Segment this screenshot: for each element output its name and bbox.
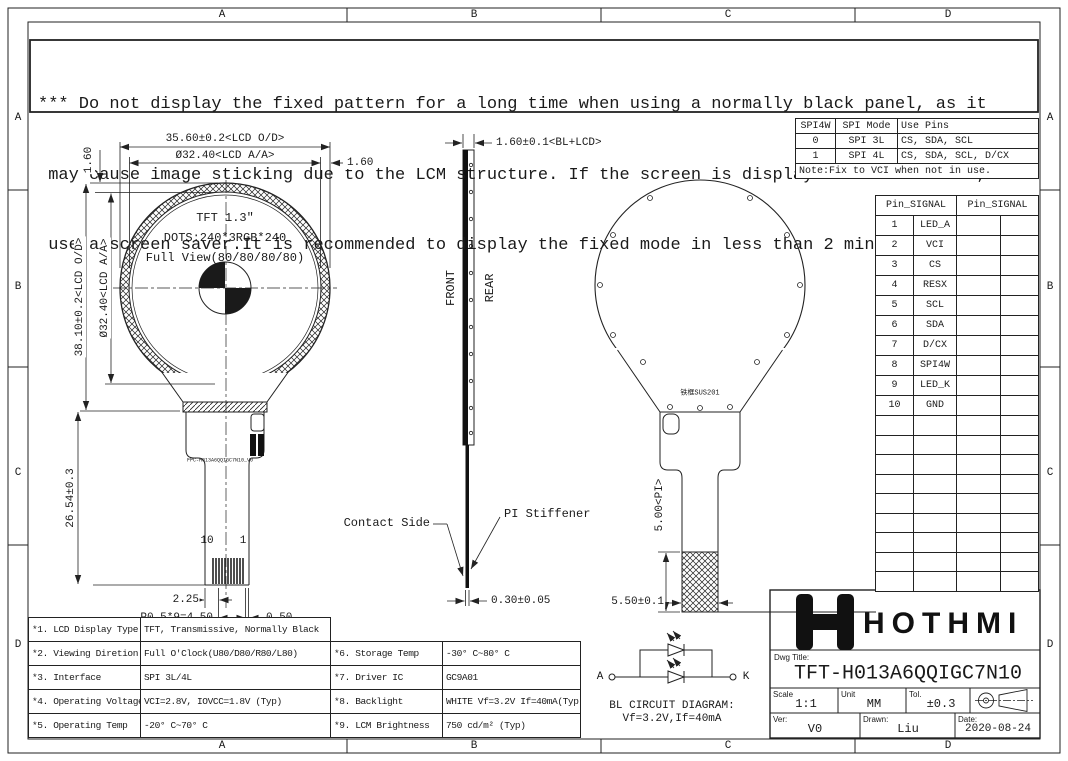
pin-signal: SCL [914,296,957,316]
empty-cell [1001,256,1039,276]
pin-signal: D/CX [914,336,957,356]
pin-1-label: 1 [239,535,248,547]
pin-row: 9LED_K [876,376,1039,396]
zone-col-a-bottom: A [219,740,226,752]
spi-cell: CS, SDA, SCL, D/CX [898,149,1039,164]
dim-lcd-aa-height: Ø32.40<LCD A/A> [99,237,111,338]
spec-row: *9. LCM Brightness750 cd/m² (Typ) [331,714,581,738]
spec-value: -20° C~70° C [141,714,331,738]
cathode-label: K [742,671,751,683]
empty-cell [1001,236,1039,256]
dim-lcd-aa-width: Ø32.40<LCD A/A> [174,150,275,162]
spi-row: 0 SPI 3L CS, SDA, SCL [796,134,1039,149]
pin-number: 2 [876,236,914,256]
pin-signal: LED_K [914,376,957,396]
pin-number: 8 [876,356,914,376]
empty-cell [1001,316,1039,336]
spec-value: WHITE Vf=3.2V If=40mA(Typ) [443,690,581,714]
empty-cell [1001,336,1039,356]
panel-size-label: TFT 1.3″ [195,211,255,225]
rear-side-label: REAR [483,273,497,304]
spec-label: *3. Interface [29,666,141,690]
zone-col-b-bottom: B [471,740,478,752]
empty-row [876,455,1039,475]
empty-row [876,533,1039,553]
spi-cell: 1 [796,149,836,164]
dim-bezel-gap-right: 1.60 [346,157,374,169]
dim-fpc-thickness: 0.30±0.05 [490,595,551,607]
spi-cell: CS, SDA, SCL [898,134,1039,149]
pin-row: 2VCI [876,236,1039,256]
panel-view-label: Full View(80/80/80/80) [145,251,305,265]
spec-value: GC9A01 [443,666,581,690]
empty-cell [957,396,1001,416]
drawing-part-number: TFT-H013A6QQIGC7N10 [794,663,1022,686]
date-value: 2020-08-24 [965,723,1031,735]
zone-col-d-top: D [945,9,952,21]
empty-row [876,435,1039,455]
spec-value: VCI=2.8V, IOVCC=1.8V (Typ) [141,690,331,714]
spec-row: *2. Viewing DiretionFull O'Clock(U80/D80… [29,642,331,666]
zone-col-c-top: C [725,9,732,21]
pin-row: 6SDA [876,316,1039,336]
empty-cell [1001,276,1039,296]
spec-label: *4. Operating Voltage [29,690,141,714]
pin-number: 10 [876,396,914,416]
spi-cell: SPI 4L [836,149,898,164]
contact-side-label: Contact Side [343,516,431,530]
bl-caption-line-2: Vf=3.2V,If=40mA [621,713,722,725]
dim-lcd-od-width: 35.60±0.2<LCD O/D> [165,133,286,145]
empty-cell [957,256,1001,276]
front-side-label: FRONT [444,269,458,307]
pi-stiffener-label: PI Stiffener [503,507,591,521]
empty-cell [1001,396,1039,416]
bl-circuit-drawing [609,631,736,683]
dim-module-thickness: 1.60±0.1<BL+LCD> [495,137,603,149]
spi-cell: SPI 3L [836,134,898,149]
hothmi-logo-icon [796,594,854,650]
pin-header-left: Pin_SIGNAL [876,196,957,216]
unit-value: MM [867,697,881,711]
spec-row: *4. Operating VoltageVCI=2.8V, IOVCC=1.8… [29,690,331,714]
zone-row-b-left: B [15,281,22,293]
empty-cell [957,276,1001,296]
pin-row: 8SPI4W [876,356,1039,376]
empty-row [876,513,1039,533]
pin-row: 3CS [876,256,1039,276]
dwg-title-label: Dwg Title: [774,653,809,662]
dim-tail-edge: 2.25 [172,594,200,606]
spec-row: *7. Driver ICGC9A01 [331,666,581,690]
pin-signal: SDA [914,316,957,336]
pin-header-right: Pin_SIGNAL [957,196,1039,216]
ver-label: Ver: [773,715,787,724]
spec-row: *3. InterfaceSPI 3L/4L [29,666,331,690]
spec-value: Full O'Clock(U80/D80/R80/L80) [141,642,331,666]
pin-signal: LED_A [914,216,957,236]
spi-note: Note:Fix to VCI when not in use. [796,164,1039,179]
version-value: V0 [808,722,822,736]
empty-row [876,552,1039,572]
pin-signal-table: Pin_SIGNAL Pin_SIGNAL 1LED_A 2VCI 3CS 4R… [875,195,1039,592]
pin-row: 5SCL [876,296,1039,316]
spi-row: 1 SPI 4L CS, SDA, SCL, D/CX [796,149,1039,164]
spec-row: *6. Storage Temp-30° C~80° C [331,642,581,666]
zone-col-d-bottom: D [945,740,952,752]
dim-tail-width: 5.50±0.1 [610,596,665,608]
dim-bezel-gap-top: 1.60 [83,146,95,174]
empty-row [876,494,1039,514]
spec-value: 750 cd/m² (Typ) [443,714,581,738]
dim-fpc-length: 26.54±0.3 [65,467,77,528]
zone-row-b-right: B [1047,281,1054,293]
dim-pi-height: 5.00<PI> [654,478,666,533]
empty-cell [1001,296,1039,316]
pin-row: 4RESX [876,276,1039,296]
spi-header-pins: Use Pins [898,119,1039,134]
pin-number: 6 [876,316,914,336]
empty-cell [957,236,1001,256]
pin-10-label: 10 [199,535,214,547]
projection-symbol [975,690,1033,712]
bl-caption-line-1: BL CIRCUIT DIAGRAM: [608,700,735,712]
spi-header-spi4w: SPI4W [796,119,836,134]
empty-cell [957,356,1001,376]
spec-label: *8. Backlight [331,690,443,714]
spec-label: *7. Driver IC [331,666,443,690]
empty-cell [957,296,1001,316]
dim-lcd-od-height: 38.10±0.2<LCD O/D> [74,237,86,358]
drawn-by-value: Liu [897,722,919,736]
scale-value: 1:1 [795,697,817,711]
pin-row: 10GND [876,396,1039,416]
zone-row-d-right: D [1047,639,1054,651]
pin-signal: VCI [914,236,957,256]
zone-row-c-right: C [1047,467,1054,479]
spec-table-right: *6. Storage Temp-30° C~80° C *7. Driver … [330,641,581,738]
pin-signal: GND [914,396,957,416]
spec-value: -30° C~80° C [443,642,581,666]
pin-number: 7 [876,336,914,356]
spec-table-left: *1. LCD Display TypeTFT, Transmissive, N… [28,617,331,738]
brand-wordmark: HOTHMI [863,607,1023,641]
spec-label: *1. LCD Display Type [29,618,141,642]
empty-row [876,572,1039,592]
engineering-drawing-sheet: A B C D A B C D A B C D A B C D *** Do n… [0,0,1068,761]
pin-number: 4 [876,276,914,296]
fpc-part-number: FPC-H013A6QQIGC7N10_V0 [187,459,253,464]
spec-value: SPI 3L/4L [141,666,331,690]
empty-cell [957,316,1001,336]
warning-line-1: *** Do not display the fixed pattern for… [38,93,1007,117]
empty-cell [957,216,1001,236]
zone-row-d-left: D [15,639,22,651]
pin-number: 9 [876,376,914,396]
spec-label: *9. LCM Brightness [331,714,443,738]
unit-label: Unit [841,690,855,699]
anode-label: A [596,671,605,683]
empty-cell [1001,376,1039,396]
zone-col-c-bottom: C [725,740,732,752]
metal-frame-label: 铁框SUS201 [680,391,719,398]
empty-cell [1001,216,1039,236]
empty-row [876,416,1039,436]
tolerance-value: ±0.3 [927,697,956,711]
empty-cell [957,336,1001,356]
spec-row: *5. Operating Temp-20° C~70° C [29,714,331,738]
spec-label: *5. Operating Temp [29,714,141,738]
scale-label: Scale [773,690,793,699]
panel-dots-label: DOTS:240*3RGB*240 [163,231,287,245]
zone-col-b-top: B [471,9,478,21]
empty-row [876,474,1039,494]
drawn-label: Drawn: [863,715,888,724]
pin-signal: CS [914,256,957,276]
pin-number: 3 [876,256,914,276]
zone-row-c-left: C [15,467,22,479]
tol-label: Tol. [909,690,921,699]
spi-mode-table: SPI4W SPI Mode Use Pins 0 SPI 3L CS, SDA… [795,118,1039,179]
spec-row: *8. BacklightWHITE Vf=3.2V If=40mA(Typ) [331,690,581,714]
pin-number: 1 [876,216,914,236]
pin-signal: SPI4W [914,356,957,376]
empty-cell [1001,356,1039,376]
spec-label: *2. Viewing Diretion [29,642,141,666]
pin-signal: RESX [914,276,957,296]
zone-row-a-left: A [15,112,22,124]
spec-value: TFT, Transmissive, Normally Black [141,618,331,642]
pin-number: 5 [876,296,914,316]
empty-cell [957,376,1001,396]
zone-col-a-top: A [219,9,226,21]
spec-label: *6. Storage Temp [331,642,443,666]
pin-row: 7D/CX [876,336,1039,356]
pin-row: 1LED_A [876,216,1039,236]
zone-row-a-right: A [1047,112,1054,124]
spi-header-mode: SPI Mode [836,119,898,134]
spec-row: *1. LCD Display TypeTFT, Transmissive, N… [29,618,331,642]
spi-cell: 0 [796,134,836,149]
